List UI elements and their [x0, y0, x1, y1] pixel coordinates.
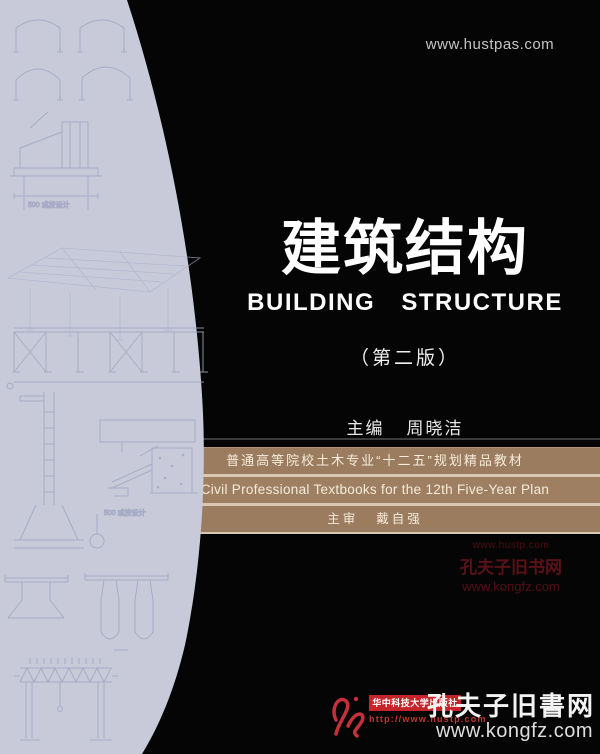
book-title-chinese: 建筑结构	[215, 218, 595, 280]
hust-press-logo-icon	[326, 688, 368, 744]
kongfz-watermark-url: www.kongfz.com	[425, 579, 597, 594]
drawing-annotation: 500 或按设计	[104, 508, 146, 517]
book-title-english: BUILDING STRUCTURE	[210, 289, 600, 317]
kongfz-logo-url: www.kongfz.com	[436, 720, 593, 743]
reviewer-role-label: 主审	[327, 512, 358, 526]
kongfz-logo-text: 孔夫子旧書网	[427, 686, 595, 723]
editor-name: 周晓洁	[407, 419, 464, 438]
book-cover: www.hustpas.com 普通高等院校土木专业“十二五”规划精品教材 Ci…	[0, 0, 600, 754]
edition-label: （第二版）	[210, 343, 600, 370]
banner-top-shadow-line	[195, 438, 600, 440]
kongfz-watermark-name: 孔夫子旧书网	[425, 553, 597, 578]
top-website-url: www.hustpas.com	[400, 36, 580, 53]
editor-line: 主编周晓洁	[210, 414, 600, 439]
kongfz-photo-watermark: www.hustp.com 孔夫子旧书网 www.kongfz.com	[425, 540, 597, 594]
drawing-annotation: 500 或按设计	[28, 200, 70, 209]
panel-shape	[0, 0, 204, 754]
editor-role-label: 主编	[347, 419, 385, 438]
reviewer-name: 戴自强	[376, 512, 423, 526]
left-drawings-panel: 500 或按设计	[0, 0, 220, 754]
hustp-watermark-url: www.hustp.com	[425, 540, 597, 551]
